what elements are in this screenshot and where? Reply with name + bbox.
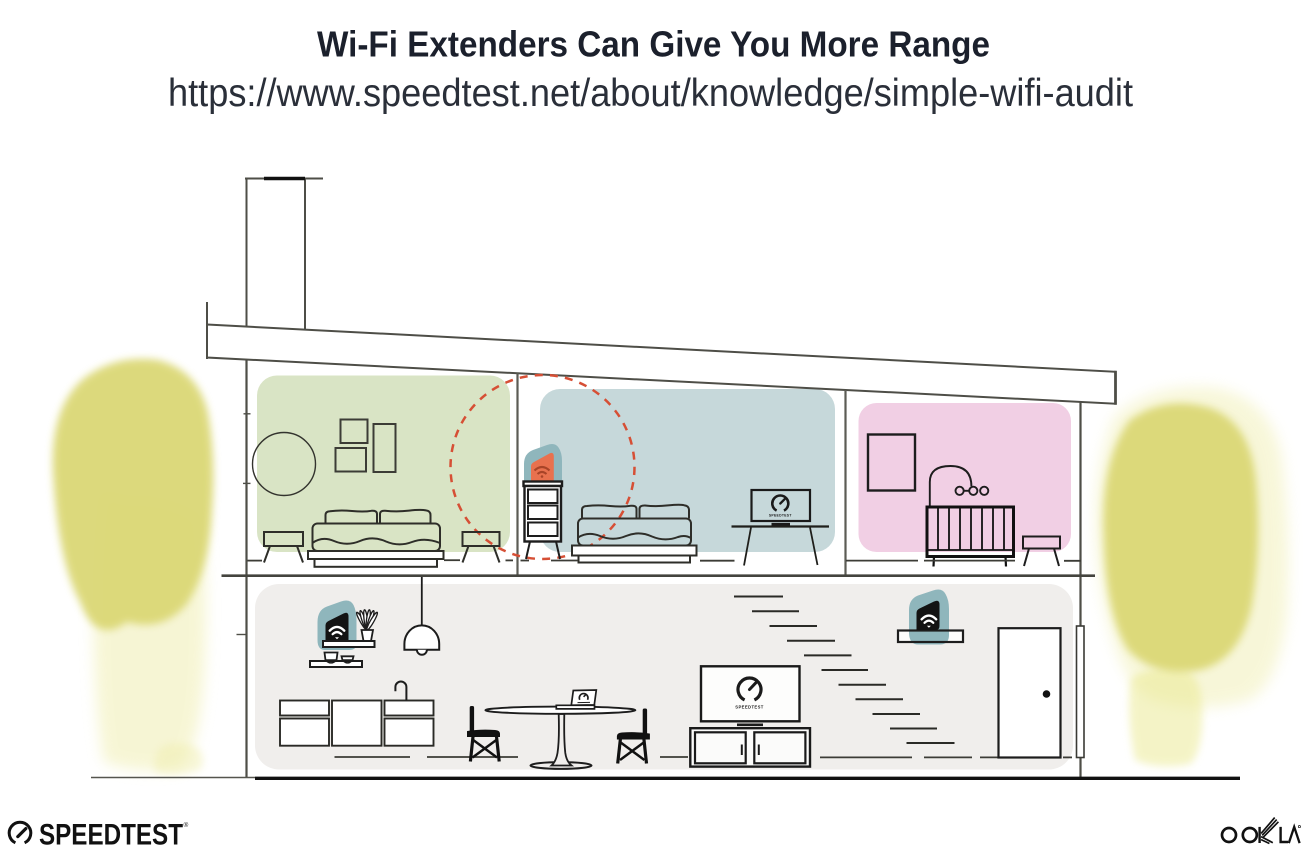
svg-text:SPEEDTEST: SPEEDTEST (39, 819, 183, 852)
svg-text:®: ® (184, 821, 189, 829)
svg-text:Wi-Fi Extenders Can Give You M: Wi-Fi Extenders Can Give You More Range (317, 24, 990, 65)
svg-text:SPEEDTEST: SPEEDTEST (769, 514, 792, 518)
svg-text:https://www.speedtest.net/abou: https://www.speedtest.net/about/knowledg… (168, 72, 1133, 115)
svg-text:SPEEDTEST: SPEEDTEST (735, 705, 764, 710)
